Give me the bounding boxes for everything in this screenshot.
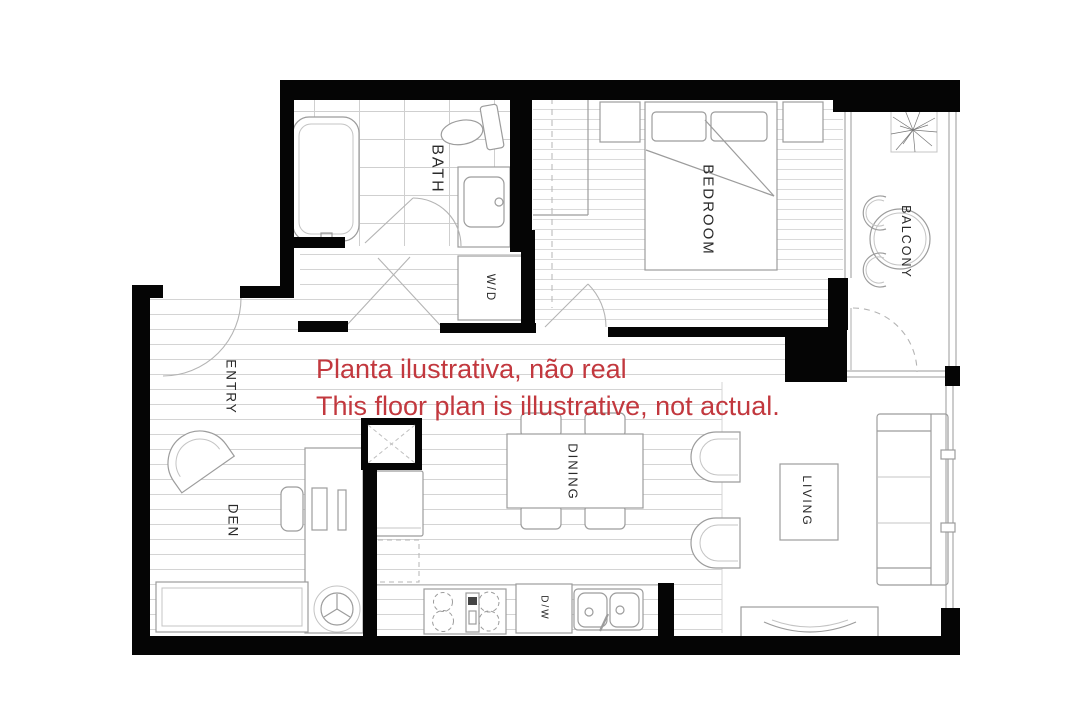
- office-chair: [314, 586, 360, 632]
- balcony-label: BALCONY: [899, 205, 913, 279]
- balcony-railing: [949, 112, 956, 370]
- washer-dryer-label: W/D: [484, 274, 496, 302]
- desk: [305, 448, 363, 633]
- wall-corner-bottom-right: [941, 608, 960, 655]
- balcony-door: [851, 308, 917, 372]
- wall-wd-right: [521, 230, 535, 332]
- bedroom-label: BEDROOM: [700, 164, 717, 256]
- accent-chair-bottom: [691, 518, 740, 568]
- wall-hall-stub-left: [298, 321, 348, 332]
- kitchen-sink: [574, 589, 643, 631]
- dishwasher-label: D/W: [539, 595, 550, 620]
- wall-kitchen-stub: [658, 583, 674, 637]
- wall-top-balcony: [833, 80, 960, 112]
- annotation-line-1: Planta ilustrativa, não real: [316, 354, 627, 384]
- wall-balcony-left-stub: [828, 278, 848, 330]
- wall-bedroom-bottom: [608, 327, 790, 337]
- entry-label: ENTRY: [224, 359, 239, 415]
- dining-label: DINING: [566, 443, 581, 501]
- stove: [424, 589, 506, 634]
- wall-entry-top-right: [240, 286, 294, 298]
- accent-chair-top: [691, 432, 740, 482]
- tv-console: [741, 607, 878, 638]
- wall-hall-stub-right: [440, 323, 536, 333]
- bathtub: [293, 117, 359, 241]
- dining-chair-3: [521, 505, 561, 529]
- den-label: DEN: [226, 504, 241, 539]
- pantry-closet: [361, 418, 422, 470]
- wall-bath-bottom: [280, 237, 345, 248]
- desk-chair: [281, 487, 303, 531]
- wall-balcony-end-block: [945, 366, 960, 386]
- wall-left: [132, 285, 150, 655]
- wall-bedroom-living-block: [785, 327, 847, 382]
- wall-top: [280, 80, 837, 100]
- wall-bath-right: [510, 80, 532, 252]
- living-label: LIVING: [800, 475, 814, 526]
- bath-sink: [458, 167, 510, 247]
- credenza: [156, 582, 308, 632]
- sofa: [877, 414, 948, 585]
- nightstand-left: [600, 102, 640, 142]
- living-furniture: [741, 414, 948, 638]
- living-top-window: [847, 371, 957, 377]
- wall-bath-left: [280, 80, 294, 298]
- wall-bottom: [132, 636, 960, 655]
- dining-chair-4: [585, 505, 625, 529]
- floor-plan-drawing: BATH BEDROOM BALCONY ENTRY DEN DINING LI…: [0, 0, 1080, 720]
- balcony-chair-top: [863, 196, 886, 230]
- nightstand-right: [783, 102, 823, 142]
- bedroom-balcony-window: [845, 112, 851, 278]
- plant: [891, 109, 937, 152]
- floor-plan-page: BATH BEDROOM BALCONY ENTRY DEN DINING LI…: [0, 0, 1080, 720]
- bath-label: BATH: [429, 144, 446, 193]
- annotation-line-2: This floor plan is illustrative, not act…: [316, 391, 780, 421]
